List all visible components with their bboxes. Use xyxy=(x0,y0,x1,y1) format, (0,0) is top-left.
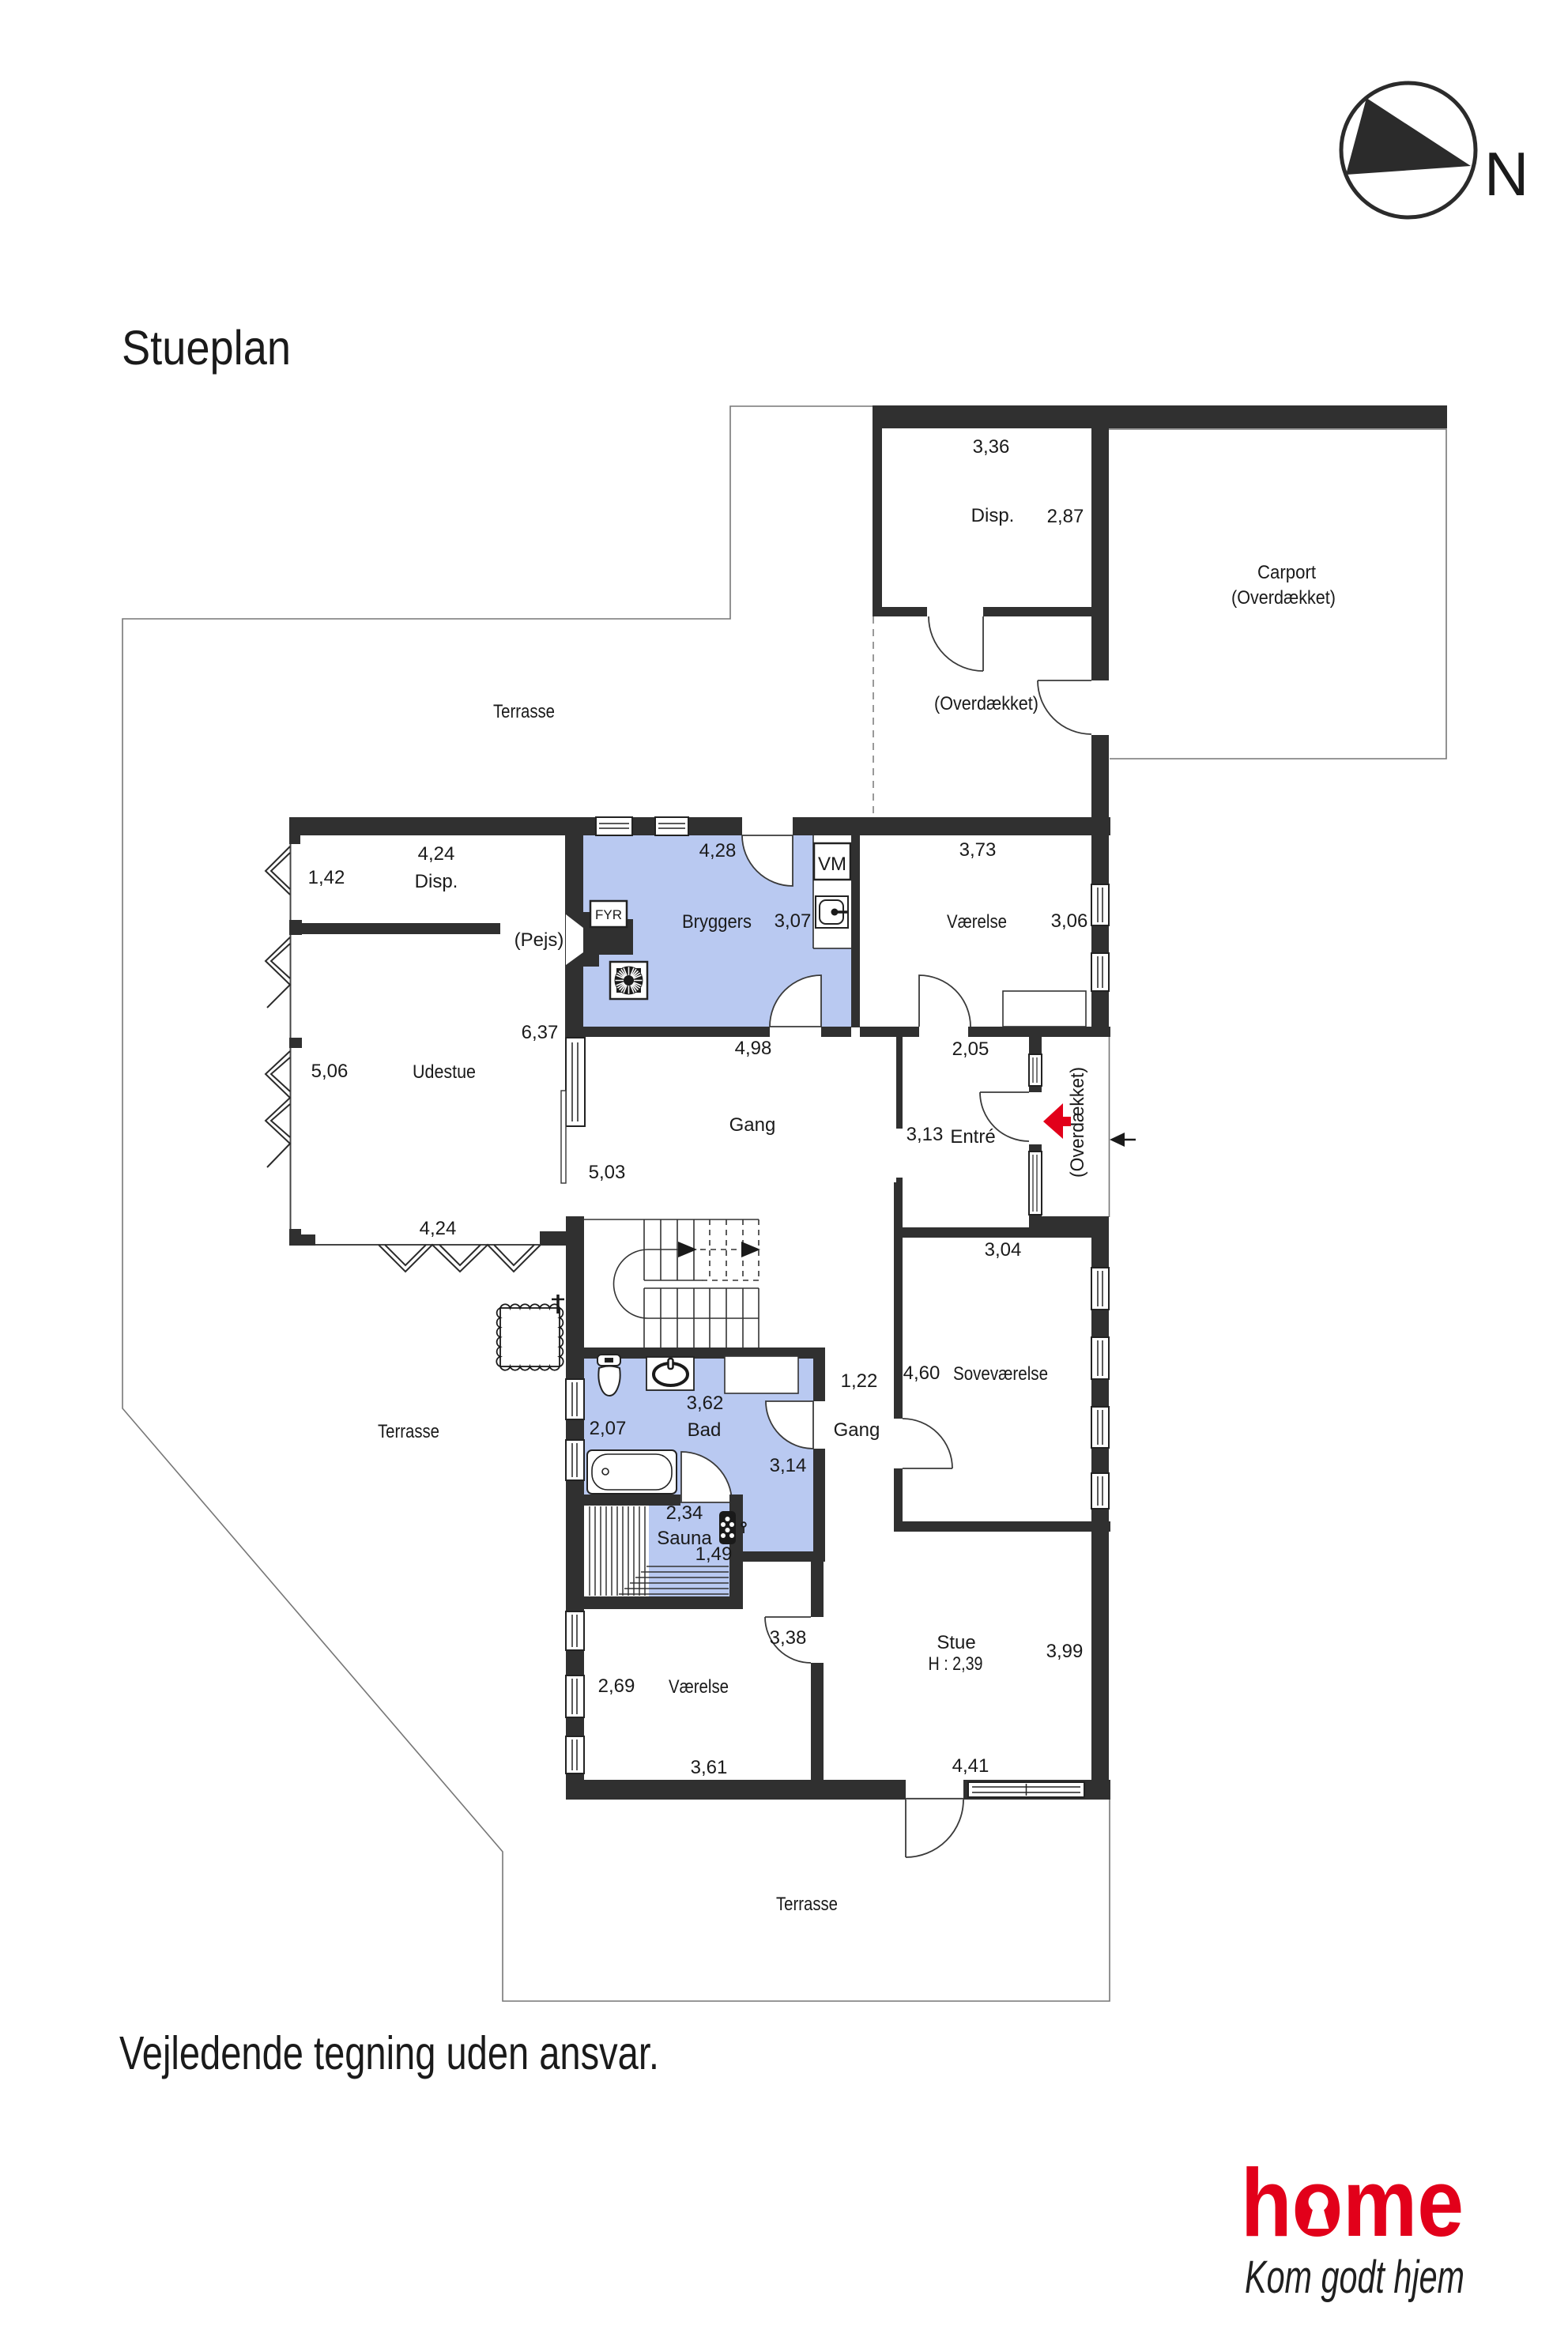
svg-text:1,49: 1,49 xyxy=(695,1543,733,1565)
svg-text:4,41: 4,41 xyxy=(952,1755,989,1777)
svg-text:Terrasse: Terrasse xyxy=(493,701,555,722)
svg-text:3,07: 3,07 xyxy=(775,910,812,932)
svg-text:Terrasse: Terrasse xyxy=(378,1421,439,1442)
svg-text:3,38: 3,38 xyxy=(770,1627,807,1649)
svg-text:Vejledende tegning uden ansvar: Vejledende tegning uden ansvar. xyxy=(119,2027,659,2079)
svg-text:3,13: 3,13 xyxy=(906,1124,944,1145)
svg-text:3,61: 3,61 xyxy=(691,1757,728,1778)
svg-text:3,62: 3,62 xyxy=(687,1393,724,1414)
svg-text:(Overdækket): (Overdækket) xyxy=(934,693,1038,714)
svg-text:2,07: 2,07 xyxy=(590,1418,627,1439)
svg-text:2,87: 2,87 xyxy=(1047,506,1084,527)
svg-text:6,37: 6,37 xyxy=(522,1022,559,1043)
svg-text:Kom godt hjem: Kom godt hjem xyxy=(1245,2252,1464,2303)
svg-text:home: home xyxy=(1241,2149,1464,2256)
svg-text:2,69: 2,69 xyxy=(598,1675,635,1697)
svg-text:Gang: Gang xyxy=(834,1419,880,1441)
svg-text:3,99: 3,99 xyxy=(1046,1641,1084,1662)
svg-text:Værelse: Værelse xyxy=(669,1676,729,1698)
svg-text:4,60: 4,60 xyxy=(903,1363,940,1384)
svg-text:1,22: 1,22 xyxy=(841,1370,878,1392)
svg-text:5,03: 5,03 xyxy=(589,1162,626,1183)
svg-text:4,24: 4,24 xyxy=(418,843,455,865)
svg-text:Terrasse: Terrasse xyxy=(776,1894,838,1915)
svg-text:Stue: Stue xyxy=(937,1632,975,1653)
svg-text:Disp.: Disp. xyxy=(415,871,458,892)
svg-text:(Pejs): (Pejs) xyxy=(514,929,564,951)
svg-text:Udestue: Udestue xyxy=(413,1061,476,1083)
svg-text:Entré: Entré xyxy=(950,1126,995,1148)
svg-text:4,28: 4,28 xyxy=(699,840,737,861)
svg-text:Carport: Carport xyxy=(1257,562,1316,583)
svg-text:4,24: 4,24 xyxy=(420,1218,457,1239)
svg-text:4,98: 4,98 xyxy=(735,1038,772,1059)
svg-text:(Overdækket): (Overdækket) xyxy=(1231,587,1336,609)
svg-text:3,14: 3,14 xyxy=(770,1455,807,1476)
svg-text:3,73: 3,73 xyxy=(959,839,997,861)
svg-text:VM: VM xyxy=(818,854,846,875)
svg-text:5,06: 5,06 xyxy=(311,1061,349,1082)
svg-text:3,04: 3,04 xyxy=(985,1239,1022,1261)
svg-text:2,05: 2,05 xyxy=(952,1038,989,1060)
svg-text:Gang: Gang xyxy=(729,1114,776,1136)
svg-text:Disp.: Disp. xyxy=(971,505,1015,526)
svg-text:2,34: 2,34 xyxy=(666,1502,703,1524)
svg-text:Soveværelse: Soveværelse xyxy=(953,1363,1048,1385)
svg-text:Stueplan: Stueplan xyxy=(122,321,291,375)
svg-text:Værelse: Værelse xyxy=(947,911,1007,933)
svg-text:1,42: 1,42 xyxy=(308,867,345,888)
svg-text:N: N xyxy=(1484,139,1528,209)
svg-text:H : 2,39: H : 2,39 xyxy=(929,1653,983,1675)
svg-text:Bryggers: Bryggers xyxy=(682,911,752,933)
svg-text:Bad: Bad xyxy=(688,1419,722,1441)
svg-text:FYR: FYR xyxy=(595,907,622,922)
svg-text:3,36: 3,36 xyxy=(973,436,1010,458)
svg-text:3,06: 3,06 xyxy=(1051,910,1088,932)
